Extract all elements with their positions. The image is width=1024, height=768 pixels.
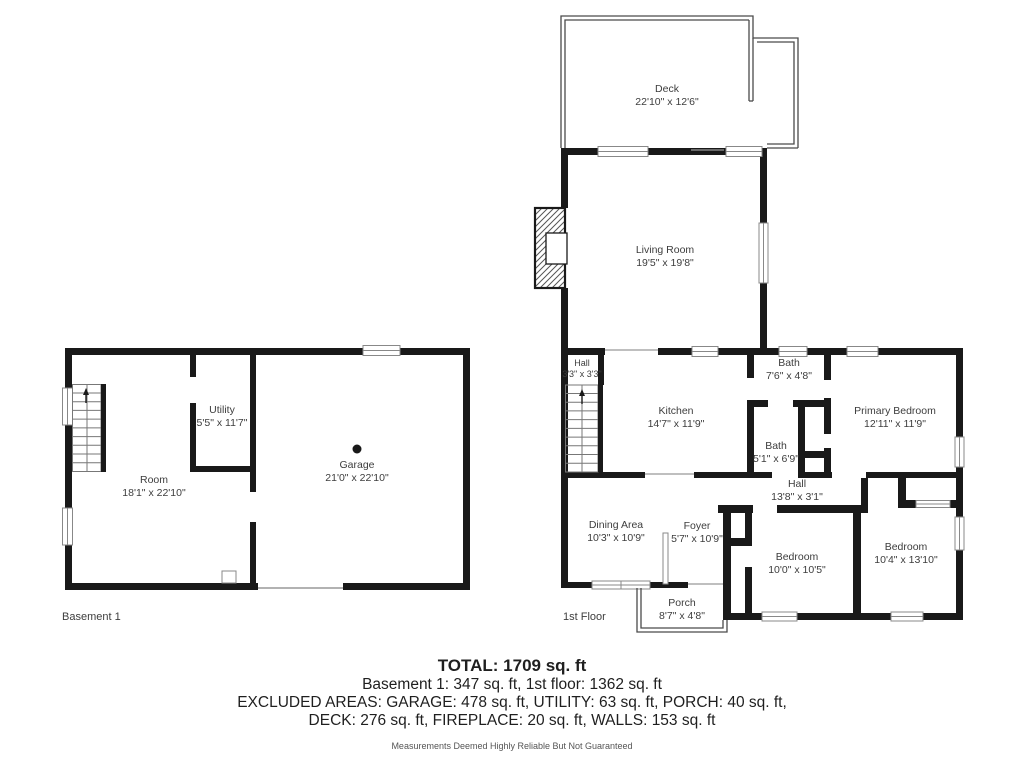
room-label-garage: Garage 21'0" x 22'10" [325, 459, 388, 485]
floorplan-drawing [0, 0, 1024, 768]
room-name: Primary Bedroom [854, 405, 936, 418]
room-label-bedroom-1: Bedroom 10'0" x 10'5" [768, 551, 826, 577]
floor-label-basement: Basement 1 [62, 611, 121, 623]
room-label-bath-upper: Bath 7'6" x 4'8" [766, 357, 812, 383]
floor-areas-text: Basement 1: 347 sq. ft, 1st floor: 1362 … [0, 676, 1024, 694]
room-dims: 14'7" x 11'9" [648, 418, 705, 431]
basement-stairs-icon [73, 385, 102, 472]
first-floor-stairs-wall [598, 384, 603, 472]
room-label-porch: Porch 8'7" x 4'8" [659, 597, 705, 623]
deck-outline [561, 16, 798, 148]
room-name: Bath [766, 357, 812, 370]
floorplan-page: Deck 22'10" x 12'6" Living Room 19'5" x … [0, 0, 1024, 768]
room-label-deck: Deck 22'10" x 12'6" [635, 83, 698, 109]
excluded-areas-text-1: EXCLUDED AREAS: GARAGE: 478 sq. ft, UTIL… [0, 694, 1024, 712]
room-name: Dining Area [587, 519, 645, 532]
room-dims: 3'3" x 3'3" [562, 369, 601, 380]
room-label-bedroom-2: Bedroom 10'4" x 13'10" [874, 541, 937, 567]
room-name: Kitchen [648, 405, 705, 418]
room-label-kitchen: Kitchen 14'7" x 11'9" [648, 405, 705, 431]
fireplace-icon [535, 208, 567, 288]
excluded-areas-text-2: DECK: 276 sq. ft, FIREPLACE: 20 sq. ft, … [0, 712, 1024, 730]
basement-chimney-stub [222, 571, 236, 583]
room-label-hall-upper: Hall 3'3" x 3'3" [562, 358, 601, 380]
room-dims: 19'5" x 19'8" [636, 257, 694, 270]
room-dims: 12'11" x 11'9" [854, 418, 936, 431]
room-label-foyer: Foyer 5'7" x 10'9" [671, 520, 723, 546]
room-dims: 5'7" x 10'9" [671, 533, 723, 546]
room-name: Porch [659, 597, 705, 610]
room-dims: 10'0" x 10'5" [768, 564, 826, 577]
room-dims: 10'3" x 10'9" [587, 532, 645, 545]
room-name: Bedroom [874, 541, 937, 554]
room-label-dining-area: Dining Area 10'3" x 10'9" [587, 519, 645, 545]
room-dims: 21'0" x 22'10" [325, 472, 388, 485]
garage-column-dot [353, 445, 362, 454]
room-name: Foyer [671, 520, 723, 533]
room-name: Bedroom [768, 551, 826, 564]
room-dims: 13'8" x 3'1" [771, 491, 823, 504]
basement-walls [65, 348, 470, 590]
room-dims: 5'5" x 11'7" [197, 417, 248, 430]
room-name: Garage [325, 459, 388, 472]
floor-label-first-floor: 1st Floor [563, 611, 606, 623]
room-name: Utility [197, 404, 248, 417]
total-area-text: TOTAL: 1709 sq. ft [0, 656, 1024, 676]
room-label-hall-lower: Hall 13'8" x 3'1" [771, 478, 823, 504]
disclaimer-text: Measurements Deemed Highly Reliable But … [0, 741, 1024, 751]
basement-stairs-wall [101, 384, 106, 472]
room-label-living-room: Living Room 19'5" x 19'8" [636, 244, 694, 270]
room-dims: 5'1" x 6'9" [753, 453, 799, 466]
room-label-bath-lower: Bath 5'1" x 6'9" [753, 440, 799, 466]
room-name: Bath [753, 440, 799, 453]
room-label-primary-bedroom: Primary Bedroom 12'11" x 11'9" [854, 405, 936, 431]
room-dims: 10'4" x 13'10" [874, 554, 937, 567]
room-name: Room [122, 474, 185, 487]
room-name: Hall [562, 358, 601, 369]
basement-windows [63, 346, 401, 546]
area-summary: TOTAL: 1709 sq. ft Basement 1: 347 sq. f… [0, 656, 1024, 751]
room-name: Deck [635, 83, 698, 96]
room-name: Living Room [636, 244, 694, 257]
room-label-utility: Utility 5'5" x 11'7" [197, 404, 248, 430]
room-dims: 18'1" x 22'10" [122, 487, 185, 500]
room-label-basement-room: Room 18'1" x 22'10" [122, 474, 185, 500]
room-name: Hall [771, 478, 823, 491]
room-dims: 8'7" x 4'8" [659, 610, 705, 623]
room-dims: 7'6" x 4'8" [766, 370, 812, 383]
room-dims: 22'10" x 12'6" [635, 96, 698, 109]
basement-stairs-arrow-icon [83, 388, 89, 403]
